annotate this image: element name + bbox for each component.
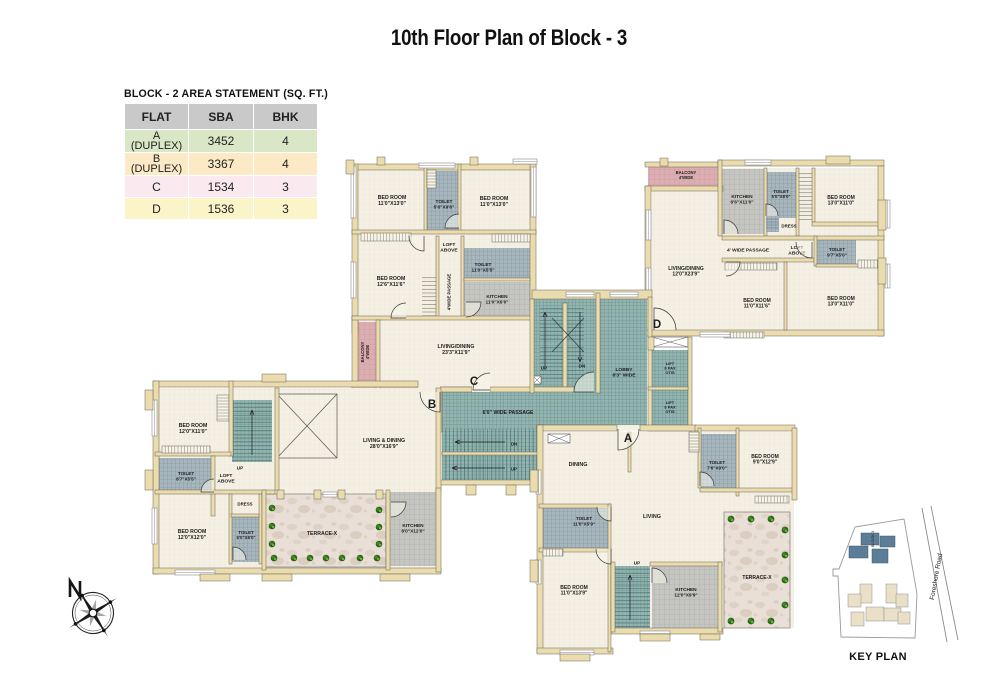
svg-text:C: C — [470, 376, 478, 388]
svg-text:B: B — [428, 399, 436, 411]
svg-text:DINING: DINING — [569, 462, 588, 468]
svg-text:TOILET11'0"X5'9": TOILET11'0"X5'9" — [573, 516, 595, 527]
svg-text:BED ROOM11'0"X13'9": BED ROOM11'0"X13'9" — [560, 585, 588, 597]
svg-text:BLOCK 3: BLOCK 3 — [871, 531, 875, 547]
svg-text:LIVING/DINING23'3"X11'9": LIVING/DINING23'3"X11'9" — [438, 344, 475, 356]
svg-text:BED ROOM11'0"X13'0": BED ROOM11'0"X13'0" — [480, 196, 509, 208]
svg-text:KITCHEN8'0"X12'0": KITCHEN8'0"X12'0" — [401, 523, 424, 535]
svg-text:TOILET8'7"X5'5": TOILET8'7"X5'5" — [176, 471, 196, 482]
svg-text:KITCHEN11'0"X6'0": KITCHEN11'0"X6'0" — [485, 294, 508, 306]
svg-text:DN: DN — [579, 364, 586, 369]
svg-text:BED ROOM9'0"X12'9": BED ROOM9'0"X12'9" — [751, 454, 779, 466]
svg-text:TOILET7'6"X9'0": TOILET7'6"X9'0" — [707, 460, 727, 471]
svg-text:TOILET11'0"X5'5": TOILET11'0"X5'5" — [471, 262, 494, 274]
svg-text:DRESS: DRESS — [781, 224, 796, 229]
svg-text:6'0" WIDE PASSAGE: 6'0" WIDE PASSAGE — [483, 410, 534, 416]
svg-text:TOILET5'6"X9'6": TOILET5'6"X9'6" — [434, 199, 455, 211]
svg-text:LIVING: LIVING — [643, 514, 661, 520]
svg-text:BED ROOM12'0"X11'0": BED ROOM12'0"X11'0" — [179, 423, 208, 435]
svg-text:TOILET5'0"X8'0": TOILET5'0"X8'0" — [237, 530, 256, 540]
svg-text:KEY PLAN: KEY PLAN — [849, 651, 907, 663]
svg-text:BED ROOM11'0"X13'0": BED ROOM11'0"X13'0" — [378, 195, 407, 207]
svg-text:BED ROOM12'6"X11'6": BED ROOM12'6"X11'6" — [377, 276, 406, 288]
svg-text:UP: UP — [511, 467, 517, 472]
svg-text:UP: UP — [237, 466, 243, 471]
svg-text:KITCHEN12'0"X9'9": KITCHEN12'0"X9'9" — [674, 587, 697, 599]
svg-text:TERRACE-X: TERRACE-X — [307, 531, 338, 537]
svg-text:4' WIDE PASSAGE: 4' WIDE PASSAGE — [727, 248, 770, 254]
svg-text:LIFT8 PAXOTIS: LIFT8 PAXOTIS — [664, 361, 676, 375]
svg-text:TERRACE-X: TERRACE-X — [742, 575, 772, 581]
svg-text:TOILET5'0"X8'0": TOILET5'0"X8'0" — [772, 189, 791, 199]
svg-text:BED ROOM13'0"X11'0": BED ROOM13'0"X11'0" — [827, 195, 855, 207]
svg-text:D: D — [653, 319, 661, 331]
svg-text:BED ROOM11'0"X11'6": BED ROOM11'0"X11'6" — [743, 298, 771, 310]
svg-text:A: A — [624, 433, 632, 445]
svg-text:UP: UP — [541, 366, 547, 371]
svg-text:TOILET9'7"X5'0": TOILET9'7"X5'0" — [827, 247, 847, 258]
svg-text:DN: DN — [511, 442, 517, 447]
svg-text:DRESS: DRESS — [237, 502, 252, 507]
svg-text:BED ROOM13'0"X11'0": BED ROOM13'0"X11'0" — [827, 296, 855, 308]
svg-text:BED ROOM12'0"X12'0": BED ROOM12'0"X12'0" — [178, 529, 207, 541]
svg-text:LIVING/DINING12'0"X23'9": LIVING/DINING12'0"X23'9" — [668, 266, 704, 278]
svg-text:KITCHEN6'6"X11'0": KITCHEN6'6"X11'0" — [730, 194, 753, 206]
svg-text:LIFT8 PAXOTIS: LIFT8 PAXOTIS — [664, 400, 676, 414]
svg-text:4'WIDE PASSAGE: 4'WIDE PASSAGE — [447, 274, 452, 311]
svg-text:UP: UP — [634, 561, 640, 566]
